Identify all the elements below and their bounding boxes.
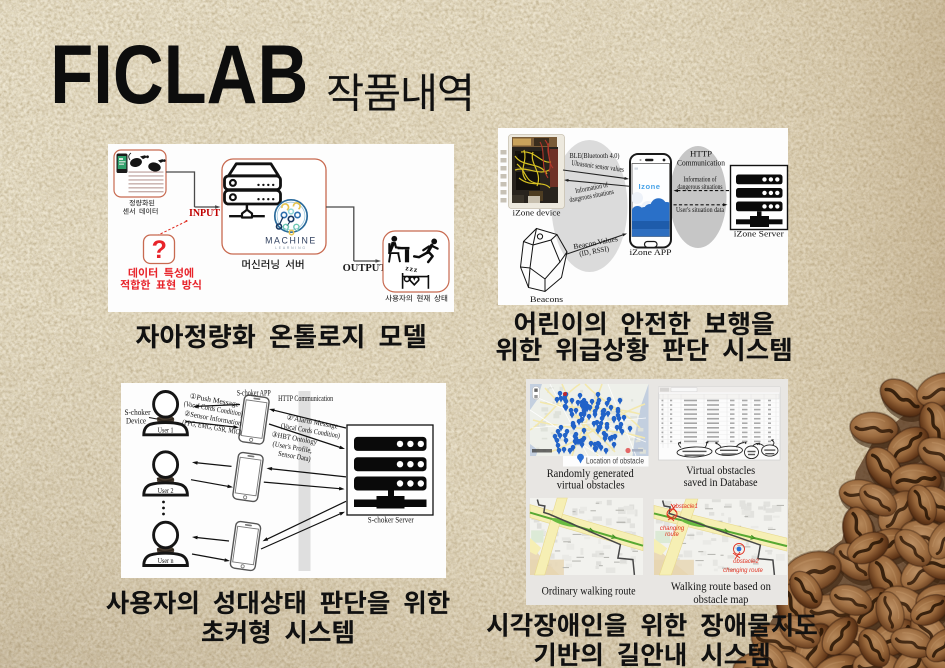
svg-text:iZone APP: iZone APP [630,248,673,257]
svg-text:MACHINE: MACHINE [265,236,317,246]
svg-text:virtual obstacles: virtual obstacles [557,480,625,492]
svg-text:Location of obstacle: Location of obstacle [586,457,644,466]
svg-text:LEARNING: LEARNING [275,246,307,250]
svg-text:User 1: User 1 [158,426,174,435]
svg-text:User's situation data: User's situation data [676,205,725,214]
svg-text:Randomly generated: Randomly generated [547,468,634,480]
svg-text:saved in Database: saved in Database [684,477,758,489]
svg-text:Izone: Izone [639,182,661,191]
svg-text:obstacle map: obstacle map [693,594,748,606]
svg-text:INPUT: INPUT [189,208,220,219]
svg-text:HTTP Communication: HTTP Communication [278,394,333,403]
svg-text:Beacons: Beacons [530,295,563,304]
svg-text:S-choker APP: S-choker APP [237,389,271,398]
svg-text:User n: User n [158,556,174,565]
svg-text:Walking route based on: Walking route based on [671,581,771,593]
svg-text:User 2: User 2 [158,486,174,495]
svg-text:Communication: Communication [677,159,725,168]
svg-text:OUTPUT: OUTPUT [343,263,387,274]
svg-text:Virtual obstacles: Virtual obstacles [686,465,755,477]
svg-text:Ordinary walking route: Ordinary walking route [542,586,636,598]
svg-text:HTTP: HTTP [690,150,713,159]
svg-text:obstacle2: obstacle2 [733,559,759,565]
svg-text:FICLAB: FICLAB [50,28,308,121]
svg-text:iZone Server: iZone Server [734,230,784,239]
svg-text:changing route: changing route [723,568,763,574]
svg-text:obstacle1: obstacle1 [672,504,698,510]
svg-text:?: ? [152,236,167,264]
svg-text:Device: Device [126,417,146,426]
svg-text:S-choker Server: S-choker Server [368,515,414,525]
svg-text:iZone device: iZone device [513,209,562,218]
svg-text:dangerous situations: dangerous situations [678,182,723,191]
svg-text:route: route [665,532,679,538]
